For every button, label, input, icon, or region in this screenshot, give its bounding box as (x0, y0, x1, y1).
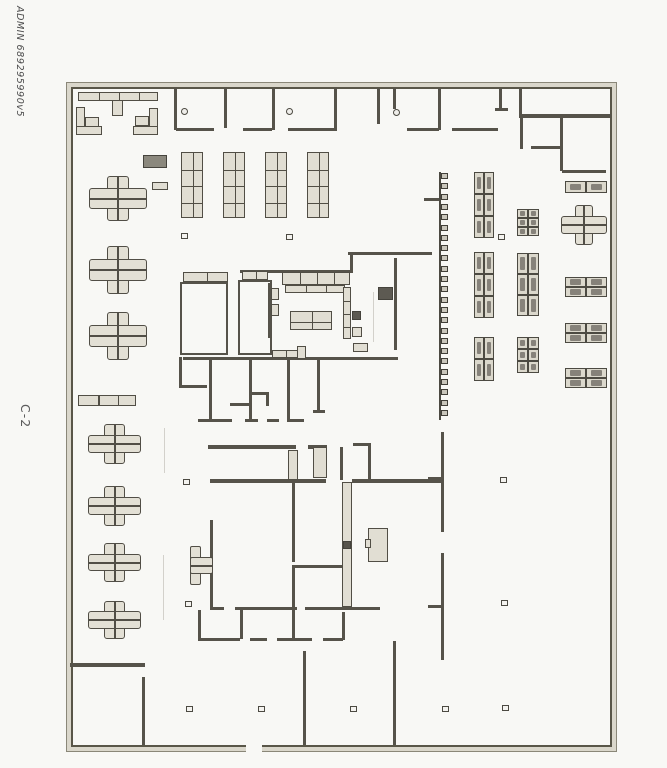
labeled-desk-cell (586, 378, 607, 388)
furniture-block (271, 288, 279, 300)
table-group (78, 92, 158, 101)
labeled-desk-cell (586, 368, 607, 378)
furniture-block (152, 182, 168, 190)
table-divider (317, 273, 318, 284)
wall-segment (243, 128, 272, 131)
table-group (265, 152, 287, 218)
column-marker (501, 600, 508, 606)
labeled-desk-cell (586, 277, 607, 287)
wall-segment (176, 128, 214, 131)
wall-segment (230, 403, 252, 406)
wall-segment (198, 419, 232, 422)
table-group (181, 152, 203, 218)
furniture-block (133, 126, 158, 135)
labeled-desk-cell (517, 349, 528, 361)
table-divider (256, 272, 257, 279)
wall-segment (350, 252, 353, 273)
table-group (183, 272, 228, 282)
locker-cell (441, 286, 448, 292)
wall-segment (180, 282, 182, 355)
furniture-block (271, 304, 279, 316)
labeled-desk-cell (474, 337, 484, 359)
labeled-desk-cell (528, 337, 539, 349)
workstation-part (114, 602, 116, 638)
cross-workstation-cluster (88, 601, 141, 639)
locker-cell (441, 389, 448, 395)
table-divider (334, 273, 335, 284)
table-divider (344, 327, 350, 328)
table-divider (224, 203, 244, 204)
labeled-desk-cell (484, 172, 494, 194)
column-marker (286, 234, 293, 240)
table-divider (308, 170, 328, 171)
labeled-desk-cell (528, 209, 539, 218)
wall-segment (428, 477, 442, 480)
wall-segment (438, 88, 441, 130)
table-divider (306, 286, 307, 292)
furniture-block (313, 447, 327, 478)
wall-segment (519, 114, 611, 118)
labeled-desk-cell (484, 359, 494, 381)
table-divider (182, 170, 202, 171)
wall-segment (452, 128, 498, 131)
wall-segment (323, 638, 343, 641)
wall-segment (240, 610, 243, 639)
wall-segment (560, 117, 563, 171)
wall-segment (142, 677, 145, 745)
building-outer-wall (66, 82, 617, 752)
door-symbol (286, 108, 293, 115)
workstation-part (114, 425, 116, 463)
wall-segment (499, 88, 502, 109)
labeled-desk-cell (528, 349, 539, 361)
labeled-desk-cell (484, 194, 494, 216)
wall-segment (235, 607, 297, 610)
wall-segment (174, 88, 177, 130)
cross-workstation-cluster (89, 176, 147, 221)
equipment-block (143, 155, 167, 168)
labeled-desk-cell (517, 295, 528, 316)
column-marker (502, 705, 509, 711)
labeled-desk-cell (565, 333, 586, 343)
wall-segment (313, 410, 325, 413)
wall-segment (266, 392, 269, 406)
table-divider (266, 203, 286, 204)
cross-workstation-cluster (88, 543, 141, 582)
table-group (290, 311, 332, 330)
wall-segment (562, 170, 606, 173)
table-divider (312, 312, 313, 329)
labeled-desk-cell (528, 295, 539, 316)
table-divider (235, 153, 236, 217)
wall-segment (198, 610, 201, 639)
half-cross-workstation (190, 543, 213, 588)
labeled-desk-cell (565, 277, 586, 287)
furniture-block (76, 126, 102, 135)
column-marker (258, 706, 265, 712)
workstation-part (117, 177, 119, 220)
table-group (242, 271, 268, 280)
labeled-desk-cell (565, 323, 586, 333)
labeled-desk-cell (586, 181, 607, 193)
table-divider (139, 93, 140, 100)
labeled-desk-cell (484, 337, 494, 359)
floor-plan-drawing (0, 0, 667, 768)
labeled-desk-cell (586, 287, 607, 297)
locker-cell (441, 204, 448, 210)
cross-workstation-cluster (89, 312, 147, 360)
wall-segment (334, 88, 337, 131)
furniture-block (135, 116, 149, 126)
equipment-block (343, 541, 351, 549)
equipment-block (378, 287, 393, 300)
labeled-desk-cell (517, 337, 528, 349)
wall-segment (368, 443, 371, 481)
locker-cell (441, 379, 448, 385)
table-divider (118, 396, 119, 405)
labeled-desk-cell (528, 361, 539, 373)
labeled-desk-cell (517, 361, 528, 373)
locker-cell (441, 307, 448, 313)
wall-segment (180, 282, 228, 284)
locker-cell (441, 245, 448, 251)
wall-segment (305, 607, 380, 610)
cross-workstation-cluster (561, 205, 607, 245)
table-group (78, 395, 136, 406)
locker-cell (441, 214, 448, 220)
table-divider (99, 93, 100, 100)
wall-segment (393, 88, 396, 109)
table-divider (193, 153, 194, 217)
cross-workstation-cluster (89, 246, 147, 294)
wall-segment (179, 357, 182, 388)
table-divider (266, 170, 286, 171)
door-symbol (181, 108, 188, 115)
table-divider (266, 186, 286, 187)
wall-segment (288, 128, 336, 131)
wall-segment (226, 282, 228, 355)
workstation-part (117, 313, 119, 359)
illegible-annotation-line (164, 428, 165, 473)
equipment-block (352, 311, 361, 320)
labeled-desk-cell (517, 253, 528, 274)
table-divider (207, 273, 208, 281)
wall-segment (348, 252, 432, 255)
locker-cell (441, 338, 448, 344)
wall-segment (377, 88, 380, 124)
locker-cell (441, 358, 448, 364)
workstation-part (114, 544, 116, 581)
wall-segment (441, 432, 444, 532)
locker-cell (441, 369, 448, 375)
furniture-block (297, 346, 306, 359)
labeled-desk-cell (528, 227, 539, 236)
wall-segment (179, 385, 207, 388)
locker-cell (441, 255, 448, 261)
workstation-part (114, 487, 116, 525)
table-divider (300, 273, 301, 284)
labeled-desk-cell (484, 274, 494, 296)
furniture-block (85, 117, 99, 127)
column-marker (181, 233, 188, 239)
column-marker (183, 479, 190, 485)
labeled-desk-cell (517, 274, 528, 295)
labeled-desk-cell (565, 378, 586, 388)
table-divider (344, 314, 350, 315)
table-divider (224, 186, 244, 187)
wall-segment (428, 605, 442, 608)
furniture-block (352, 327, 362, 337)
furniture-block (288, 450, 298, 480)
wall-segment (292, 482, 295, 562)
locker-cell (441, 317, 448, 323)
wall-segment (292, 565, 342, 568)
wall-segment (209, 360, 212, 422)
wall-segment (210, 479, 326, 483)
wall-segment (267, 419, 279, 422)
wall-segment (531, 146, 562, 149)
wall-segment (407, 128, 439, 131)
table-group (343, 287, 351, 339)
workstation-part (583, 206, 585, 244)
workstation-part (190, 565, 213, 567)
wall-segment (208, 445, 296, 449)
scanned-floorplan-page: ADMIN 689295990v5 C-2 (0, 0, 667, 768)
wall-segment (238, 280, 240, 355)
table-group (285, 285, 345, 293)
labeled-desk-cell (474, 216, 484, 238)
labeled-desk-cell (586, 333, 607, 343)
column-marker (350, 706, 357, 712)
locker-cell (441, 266, 448, 272)
table-divider (308, 203, 328, 204)
locker-cell (441, 328, 448, 334)
table-divider (319, 153, 320, 217)
outer-wall-door-gap (246, 742, 262, 754)
labeled-desk-cell (528, 253, 539, 274)
labeled-desk-cell (474, 359, 484, 381)
wall-segment (340, 447, 343, 480)
wall-segment (210, 607, 224, 610)
locker-cell (441, 225, 448, 231)
labeled-desk-cell (528, 218, 539, 227)
locker-cell (441, 297, 448, 303)
column-marker (498, 234, 505, 240)
illegible-annotation-line (373, 292, 374, 342)
locker-cell (441, 173, 448, 179)
wall-segment (224, 88, 227, 128)
wall-segment (245, 419, 258, 422)
column-marker (442, 706, 449, 712)
wall-segment (198, 638, 240, 641)
table-group (307, 152, 329, 218)
furniture-block (365, 539, 371, 548)
labeled-desk-cell (565, 368, 586, 378)
table-divider (182, 203, 202, 204)
wall-segment (292, 610, 295, 640)
wall-segment (249, 360, 252, 422)
wall-segment (292, 568, 295, 608)
wall-segment (393, 641, 396, 745)
table-group (223, 152, 245, 218)
wall-segment (287, 360, 290, 422)
labeled-desk-cell (474, 274, 484, 296)
labeled-desk-cell (517, 227, 528, 236)
wall-segment (238, 280, 272, 282)
labeled-desk-cell (484, 216, 494, 238)
column-marker (500, 477, 507, 483)
furniture-block (353, 343, 368, 352)
table-divider (277, 153, 278, 217)
cross-workstation-cluster (88, 486, 141, 526)
locker-cell (441, 400, 448, 406)
wall-segment (290, 419, 304, 422)
wall-segment (520, 118, 523, 149)
wall-segment (342, 612, 345, 640)
table-divider (344, 301, 350, 302)
labeled-desk-cell (517, 209, 528, 218)
labeled-desk-cell (517, 218, 528, 227)
wall-segment (250, 638, 267, 641)
table-group (272, 350, 298, 358)
labeled-desk-cell (484, 296, 494, 318)
locker-cell (441, 235, 448, 241)
table-divider (326, 286, 327, 292)
labeled-desk-cell (474, 296, 484, 318)
wall-segment (272, 88, 275, 130)
labeled-desk-cell (474, 172, 484, 194)
labeled-desk-cell (484, 252, 494, 274)
locker-cell (441, 410, 448, 416)
locker-cell (441, 194, 448, 200)
table-divider (308, 186, 328, 187)
illegible-annotation-line (163, 555, 164, 620)
wall-segment (303, 651, 306, 745)
column-marker (185, 601, 192, 607)
labeled-desk-cell (474, 252, 484, 274)
locker-cell (441, 348, 448, 354)
wall-segment (238, 353, 272, 355)
furniture-block (368, 528, 388, 562)
labeled-desk-cell (586, 323, 607, 333)
wall-segment (317, 360, 320, 413)
wall-segment (277, 638, 312, 641)
table-divider (291, 322, 331, 323)
table-group (282, 272, 350, 285)
wall-segment (70, 663, 145, 667)
labeled-desk-cell (528, 274, 539, 295)
wall-segment (180, 353, 228, 355)
column-marker (186, 706, 193, 712)
wall-segment (495, 108, 508, 111)
wall-segment (394, 258, 397, 350)
door-symbol (393, 109, 400, 116)
cross-workstation-cluster (88, 424, 141, 464)
table-divider (98, 396, 99, 405)
locker-cell (441, 183, 448, 189)
locker-cell (441, 276, 448, 282)
table-divider (224, 170, 244, 171)
table-divider (286, 351, 287, 357)
workstation-part (117, 247, 119, 293)
table-divider (119, 93, 120, 100)
labeled-desk-cell (565, 287, 586, 297)
labeled-desk-cell (565, 181, 586, 193)
labeled-desk-cell (474, 194, 484, 216)
wall-segment (519, 88, 522, 116)
table-divider (182, 186, 202, 187)
